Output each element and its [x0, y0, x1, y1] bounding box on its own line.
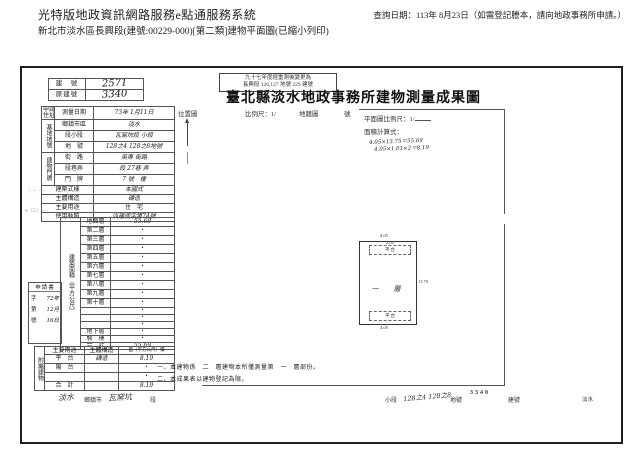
building-no-value: 2571 — [86, 79, 144, 90]
annex-use — [45, 373, 85, 382]
floor-label: 地下層 — [81, 329, 111, 336]
annex-structure: 磚造 — [85, 355, 119, 364]
plan-border-right-lower — [504, 224, 505, 386]
note-line1: 一、本建物係 二 層建物本所僅測量第 一 層部份。 — [157, 362, 320, 371]
floor-label — [81, 322, 111, 329]
building-no-label: 建 號 — [49, 79, 86, 90]
style-label: 建築式樣 — [42, 186, 94, 195]
annex-total-structure — [85, 382, 119, 391]
survey-date-value: 73年 1月11日 — [94, 107, 175, 120]
document-title: 臺北縣淡水地政事務所建物測量成果圖 — [226, 87, 481, 107]
footer-district-label: 鄉鎮市 — [84, 395, 102, 404]
floor-value: ・ — [111, 308, 175, 315]
site-group-label: 基地地號 — [42, 120, 55, 153]
floor-value: ・ — [111, 254, 175, 263]
annex-structure-header: 主體構造 — [85, 347, 119, 355]
original-no-label: 原建號 — [49, 90, 86, 101]
floor-label: 第六層 — [81, 263, 111, 272]
structure-value: 磚造 — [94, 195, 175, 204]
floor-value: ・ — [111, 227, 175, 236]
building-number-table: 建 號 2571 原建號 3340 — [48, 78, 144, 101]
location-label: 位置圖 — [178, 108, 198, 118]
area-group-label: 建築面積（平方公尺） — [61, 218, 81, 350]
floor-value: 55.69 — [111, 218, 175, 227]
plan-area: 平面圖比例尺：1/ 面積計算式： 4.05×13.75＝55.69 4.05×1… — [202, 109, 505, 386]
floor-value: ・ — [111, 336, 175, 343]
margin-mark-1: （一）── — [25, 188, 45, 194]
footer-district-hand: 淡水 — [58, 391, 75, 403]
tick-line — [187, 152, 188, 164]
footer-parcel-label: 地號 — [450, 395, 462, 404]
floor-label: 第二層 — [81, 227, 111, 236]
floor-label: 第五層 — [81, 254, 111, 263]
annex-building-table: 附屬建物 主要用途 主體構造 面（平方公尺）積 平 台 磚造 8.19 陽 台 … — [34, 346, 175, 391]
building-outline: 平 台 一 層 平 台 — [359, 241, 417, 325]
margin-mark-2: ●（三）── — [25, 208, 48, 214]
application-day: 16日 — [47, 316, 60, 324]
note-line2: 二、本成果表以建物登記為限。 — [157, 374, 248, 383]
annex-group-label: 附屬建物 — [35, 347, 45, 391]
floor-label: 第四層 — [81, 245, 111, 254]
doorplate-value: 7 號 樓 — [94, 175, 175, 186]
dim-bottom: 4.05 — [380, 325, 388, 330]
north-arrow-line — [187, 122, 188, 146]
query-date: 查詢日期：113年 8月23日（如需登記謄本，請向地政事務所申請。） — [373, 9, 626, 21]
footer-section-label: 段 — [150, 395, 156, 404]
plan-border-top — [359, 109, 505, 110]
lane-value: 段 27巷 弄 — [94, 164, 175, 175]
township-label: 鄉鎮市區 — [55, 120, 94, 131]
door-group-label: 建物門牌 — [42, 153, 55, 186]
application-month: 12月 — [47, 305, 60, 313]
annex-use-header: 主要用途 — [45, 347, 85, 355]
area-calc-line2: 4.05×1.01×2＝8.19 — [374, 143, 429, 153]
plan-border-bottom — [202, 385, 505, 386]
area-calc-label: 面積計算式： — [364, 126, 403, 136]
dim-right: 13.75 — [418, 279, 428, 284]
footer-parcel-hand: 128之4 128之8 — [403, 389, 452, 403]
floor-value: ・ — [111, 329, 175, 336]
parcel-label: 地 號 — [55, 142, 94, 153]
annex-structure — [85, 373, 119, 382]
use-value: 住 宅 — [94, 204, 175, 213]
style-value: 本國式 — [94, 186, 175, 195]
street-value: 英專 街路 — [94, 153, 175, 164]
document-subtitle: 新北市淡水區長興段(建號:00229-000)[第二類]建物平面圖(已縮小列印) — [38, 23, 329, 37]
first-floor-label: 一 層 — [360, 284, 416, 294]
footer-building-no-label: 建號 — [508, 395, 520, 404]
floor-label: 騎 樓 — [81, 336, 111, 343]
floor-label: 第九層 — [81, 290, 111, 299]
township-value: 淡水 — [94, 120, 175, 131]
floor-label: 第八層 — [81, 281, 111, 290]
system-title: 光特版地政資訊網路服務e點通服務系統 — [38, 6, 256, 23]
floor-value: ・ — [111, 236, 175, 245]
floor-value: ・ — [111, 272, 175, 281]
survey-form-upper: 申請人住址 測量日期 73年 1月11日 基地地號 鄉鎮市區 淡水 段小段 瓦窯… — [41, 106, 175, 222]
floor-label: 地面層 — [81, 218, 111, 227]
floor-value: ・ — [111, 299, 175, 308]
annex-area-header: 面（平方公尺）積 — [119, 347, 175, 355]
terrace-top: 平 台 — [369, 245, 411, 255]
lane-label: 段巷弄 — [55, 164, 94, 175]
footer-subsection-label: 小段 — [385, 395, 397, 404]
footer-section-hand: 瓦窯坑 — [108, 391, 133, 403]
annex-total-label: 合 計 — [45, 382, 85, 391]
floor-value: ・ — [111, 290, 175, 299]
floor-value: ・ — [111, 281, 175, 290]
use-label: 主要用途 — [42, 204, 94, 213]
footer-right-mark: 淡水 — [582, 395, 593, 403]
floor-value: ・ — [111, 315, 175, 322]
plan-scale-label: 平面圖比例尺：1/ — [364, 113, 431, 123]
floor-label: 第十層 — [81, 299, 111, 308]
floor-area-table: 建築面積（平方公尺） 地面層 55.69 第二層・ 第三層・ 第四層・ 第五層・… — [60, 217, 175, 350]
footer-building-no: 3340 — [470, 390, 490, 396]
floor-label — [81, 315, 111, 322]
floor-value: ・ — [111, 245, 175, 254]
application-title: 申請書 — [29, 283, 61, 292]
floor-value: ・ — [111, 263, 175, 272]
parcel-value: 128之4 128之8地號 — [94, 142, 175, 153]
survey-date-label: 測量日期 — [55, 107, 94, 120]
annex-structure — [85, 364, 119, 373]
terrace-bottom: 平 台 — [369, 311, 411, 321]
plan-border-right-upper — [504, 109, 505, 214]
street-label: 街 路 — [55, 153, 94, 164]
dim-top-small: 2.02 — [386, 240, 394, 245]
floor-label: 第三層 — [81, 236, 111, 245]
floor-label: 第七層 — [81, 272, 111, 281]
application-year: 72年 — [47, 294, 60, 302]
original-no-value: 3340 — [86, 90, 144, 101]
annex-use: 陽 台 — [45, 364, 85, 373]
floor-label — [81, 308, 111, 315]
print-page: 光特版地政資訊網路服務e點通服務系統 查詢日期：113年 8月23日（如需登記謄… — [0, 0, 640, 450]
section-value: 瓦窯坑段 小段 — [94, 131, 175, 142]
scanned-document: 九十七年度經重測後變更為 長興段 126,127 地號 229 建號 建 號 2… — [20, 66, 623, 444]
floor-value: ・ — [111, 322, 175, 329]
annex-use: 平 台 — [45, 355, 85, 364]
dim-top: 4.05 — [380, 233, 388, 238]
structure-label: 主體構造 — [42, 195, 94, 204]
section-label: 段小段 — [55, 131, 94, 142]
doorplate-label: 門 牌 — [55, 175, 94, 186]
applicant-cell: 申請人住址 — [42, 107, 55, 120]
application-box: 申請書 字72年 第12月 號16日 — [28, 282, 62, 344]
